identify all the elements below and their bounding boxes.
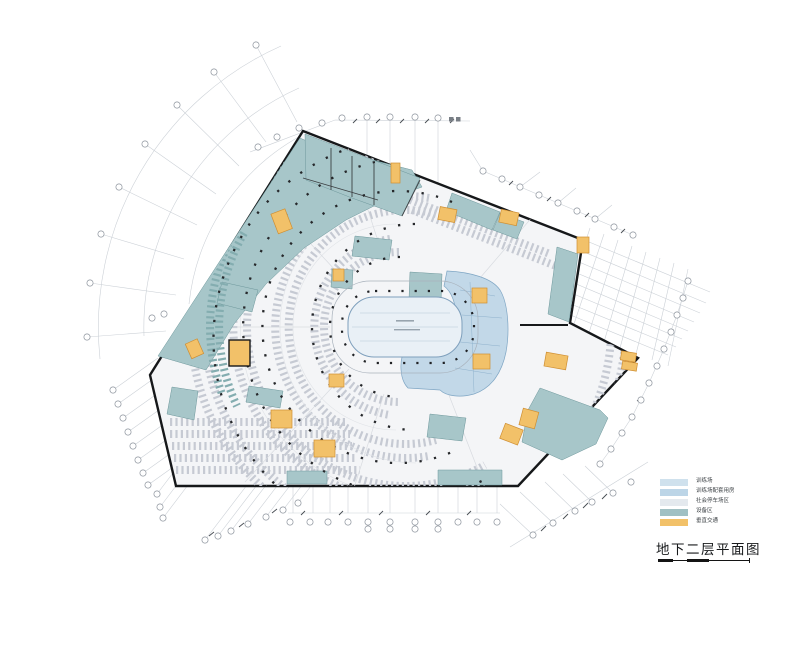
legend-row: 设备区 — [660, 507, 790, 517]
legend-swatch — [660, 519, 688, 526]
legend-row: 社会停车场区 — [660, 497, 790, 507]
scale-bar — [658, 558, 752, 564]
legend-row: 垂直交通 — [660, 517, 790, 527]
legend-label: 社会停车场区 — [696, 499, 729, 505]
rink-annotation-mark — [394, 329, 420, 330]
legend-swatch — [660, 479, 688, 486]
legend: 训练场 训练场配套用房 社会停车场区 设备区 垂直交通 — [660, 477, 790, 527]
legend-swatch — [660, 509, 688, 516]
legend-label: 垂直交通 — [696, 519, 718, 525]
drawing-title: 地下二层平面图 — [656, 538, 761, 558]
legend-row: 训练场配套用房 — [660, 487, 790, 497]
rink-annotation-mark — [396, 320, 414, 322]
legend-swatch — [660, 499, 688, 506]
legend-label: 训练场 — [696, 479, 713, 485]
drawing-sheet: 训练场 训练场配套用房 社会停车场区 设备区 垂直交通 地下二层平面图 — [0, 0, 800, 658]
legend-row: 训练场 — [660, 477, 790, 487]
legend-label: 训练场配套用房 — [696, 489, 735, 495]
legend-label: 设备区 — [696, 509, 713, 515]
legend-swatch — [660, 489, 688, 496]
